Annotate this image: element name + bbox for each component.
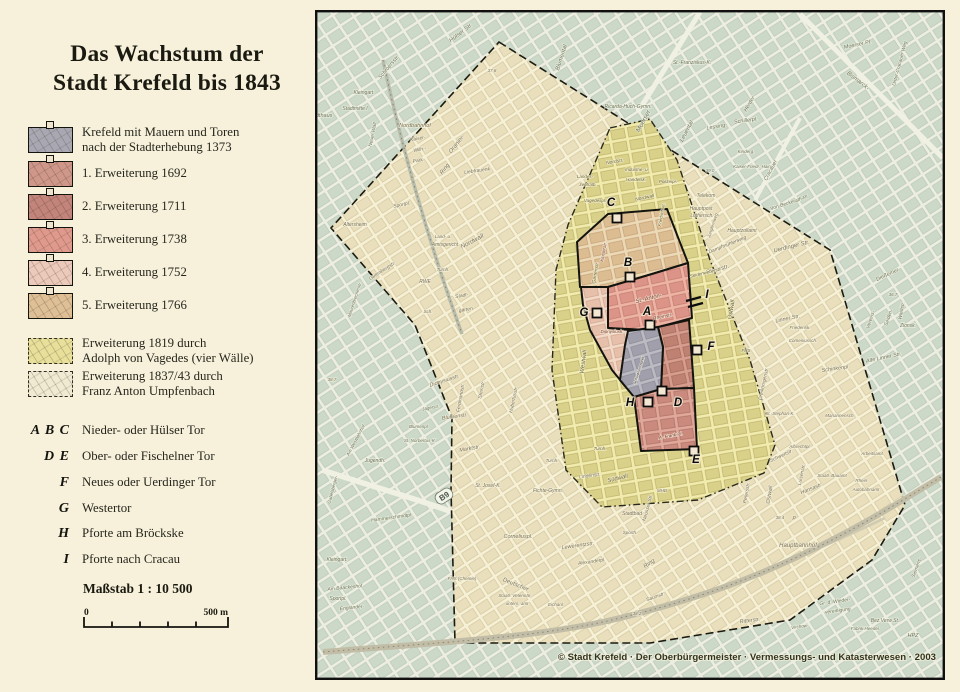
map-label: unters.-amt	[506, 601, 530, 606]
map-label: Hauptbahnhof	[779, 543, 818, 549]
map-label: Autobahnamt	[852, 487, 881, 492]
legend-growth-3-label: 3. Erweiterung 1738	[82, 232, 187, 247]
gate-letter-E: E	[692, 454, 700, 466]
map-label: Turnh.	[437, 267, 450, 272]
map-label: Vagedespl.	[584, 198, 606, 203]
map-label: zentralb.	[578, 182, 596, 187]
map-label: Blumenpl.	[409, 424, 429, 429]
map-label: MHD	[657, 488, 668, 493]
map-label: Bez.Verw.St.	[871, 618, 899, 624]
legend-extension-0-label: Erweiterung 1819 durchAdolph von Vagedes…	[82, 336, 254, 365]
map-label: Ricarda-Huch-Gymn.	[605, 104, 652, 110]
map-label: Stadthaus	[315, 113, 333, 119]
map-label: Land- u.	[435, 234, 452, 239]
map-label: Comeniussch.	[789, 338, 818, 343]
map-label: Handelsk.	[626, 177, 646, 182]
map-label: 36,7	[889, 292, 898, 297]
scale-bar-line	[84, 617, 228, 627]
gate-symbol-icon	[46, 121, 54, 129]
gate-letter-C: C	[607, 197, 616, 209]
gate-symbol-icon	[46, 188, 54, 196]
gate-letter-F: F	[707, 341, 715, 353]
page-title: Das Wachstum der Stadt Krefeld bis 1843	[22, 40, 312, 98]
map-label: St.-Stephan-K.	[765, 411, 795, 416]
map-label: Staatl. Veterinär-	[498, 593, 532, 598]
legend-gate-letters: A B C	[20, 423, 70, 439]
map-label: Sch.	[423, 309, 432, 314]
map-label: Rhein-	[855, 478, 869, 483]
map-label: Hauptzollamt	[727, 228, 757, 234]
title-line2: Stadt Krefeld bis 1843	[22, 69, 312, 98]
gate-symbol-icon	[46, 254, 54, 262]
map-label: Albrechtpl.	[788, 444, 810, 449]
gate-letter-G: G	[580, 307, 589, 319]
map-label: Landes-	[577, 174, 594, 179]
map-label: Kleingart.	[326, 557, 347, 563]
gate-square	[693, 346, 702, 355]
map-label: Fabrik Heeder	[851, 626, 880, 631]
legend-gate-letters: D E	[20, 449, 70, 465]
map-label: Friedensk.	[789, 325, 810, 330]
map-label: Corneliuspl.	[503, 534, 532, 540]
map-label: Altersheim	[342, 222, 367, 228]
map-label: Kleingart.	[353, 90, 374, 96]
map-label: St. Josef-K.	[475, 483, 501, 489]
map-label: 38,7	[328, 377, 337, 382]
poster: Das Wachstum der Stadt Krefeld bis 1843 …	[0, 0, 960, 692]
scale-end: 500 m	[203, 608, 228, 618]
map-label: Stadtmitte I	[342, 106, 368, 112]
gate-letter-H: H	[626, 397, 635, 409]
legend-growth-1-label: 1. Erweiterung 1692	[82, 166, 187, 181]
map-label: Dionysiusk.	[600, 329, 623, 334]
legend-growth-4-swatch	[28, 260, 73, 286]
map-label: FHS (Chemie)	[448, 576, 477, 581]
legend-gate-label: Pforte am Bröckske	[82, 526, 184, 541]
map-label: Staatl. Bauamt	[817, 473, 847, 478]
map-label: HPZ	[908, 633, 920, 639]
legend-extension-1-swatch	[28, 371, 73, 397]
map-label: Sportpl.	[329, 596, 346, 602]
map-label: Zionsk.	[899, 323, 916, 329]
gate-square	[658, 387, 667, 396]
legend-gate-label: Nieder- oder Hülser Tor	[82, 423, 205, 438]
map-label: Luthersch.	[690, 213, 713, 219]
gate-square	[644, 398, 653, 407]
gate-symbol-icon	[46, 155, 54, 163]
gate-square	[613, 214, 622, 223]
map-label: 37,8	[488, 68, 497, 73]
map-label: FHS	[742, 348, 751, 353]
gate-letter-D: D	[674, 397, 682, 409]
map-label: Mariannensch.	[825, 413, 855, 418]
map-label: Amtsgericht	[431, 242, 459, 248]
legend-gate-label: Westertor	[82, 501, 131, 516]
map-label: Turnh.	[546, 458, 559, 463]
legend-gate-label: Ober- oder Fischelner Tor	[82, 449, 215, 464]
legend-growth-1-swatch	[28, 161, 73, 187]
gate-letter-B: B	[624, 257, 632, 269]
gate-square	[593, 309, 602, 318]
scale-start: 0	[84, 608, 89, 618]
map-label: 38,2	[633, 611, 642, 616]
legend-growth-5-label: 5. Erweiterung 1766	[82, 298, 187, 313]
city-map: Schroersstr.Kleingart.Stadtmitte IStadth…	[315, 10, 945, 680]
map-label: Fichte-Gymn.	[533, 488, 563, 494]
copyright: © Stadt Krefeld · Der Oberbürgermeister …	[558, 652, 936, 663]
legend-growth-0-label: Krefeld mit Mauern und Torennach der Sta…	[82, 125, 239, 154]
map-label: Polizeipr.	[659, 179, 677, 184]
map-label: Sporth.	[623, 530, 638, 535]
map-label: Jugendh.	[364, 458, 386, 464]
map-label: Stadtbad	[622, 511, 642, 517]
legend-gate-letters: H	[20, 526, 70, 542]
map-label: Kaiser-Friedr.-Hain	[733, 164, 771, 169]
gate-letter-A: A	[642, 306, 651, 318]
map-label: 38,4	[776, 515, 785, 520]
legend-extension-1-label: Erweiterung 1837/43 durchFranz Anton Ump…	[82, 369, 223, 398]
legend-growth-5-swatch	[28, 293, 73, 319]
map-label: Hauptpost	[690, 206, 713, 212]
legend-gate-letters: F	[20, 475, 70, 491]
legend-growth-4-label: 4. Erweiterung 1752	[82, 265, 187, 280]
map-label: Eichanl.	[548, 602, 564, 607]
scale-bar: 0 500 m	[80, 606, 240, 634]
map-label: Arbeitsamt	[860, 451, 883, 456]
legend-growth-0-swatch	[28, 127, 73, 153]
map-label: 39,0	[706, 168, 715, 173]
legend-gate-label: Neues oder Uerdinger Tor	[82, 475, 216, 490]
legend-growth-2-label: 2. Erweiterung 1711	[82, 199, 186, 214]
legend-gate-letters: I	[20, 552, 70, 568]
map-label: Kinderg.	[738, 149, 755, 154]
legend-gate-label: Pforte nach Cracau	[82, 552, 180, 567]
legend-extension-0-swatch	[28, 338, 73, 364]
map-label: St.-Franziskus-K.	[673, 60, 711, 66]
gate-symbol-icon	[46, 221, 54, 229]
legend-growth-2-swatch	[28, 194, 73, 220]
map-label: Turnh.	[594, 446, 607, 451]
title-line1: Das Wachstum der	[22, 40, 312, 69]
map-label: Industrie- u.	[625, 167, 649, 172]
map-label: Nordbahnhof	[399, 123, 431, 129]
gate-square	[626, 273, 635, 282]
map-label: St. Norbertus-K.	[404, 438, 436, 443]
legend-gate-letters: G	[20, 501, 70, 517]
map-label: Telekom	[697, 193, 716, 199]
scale-label: Maßstab 1 : 10 500	[83, 581, 193, 597]
gate-symbol-icon	[46, 287, 54, 295]
map-content: Schroersstr.Kleingart.Stadtmitte IStadth…	[315, 10, 945, 680]
legend-growth-3-swatch	[28, 227, 73, 253]
map-label: RWE	[419, 279, 431, 285]
